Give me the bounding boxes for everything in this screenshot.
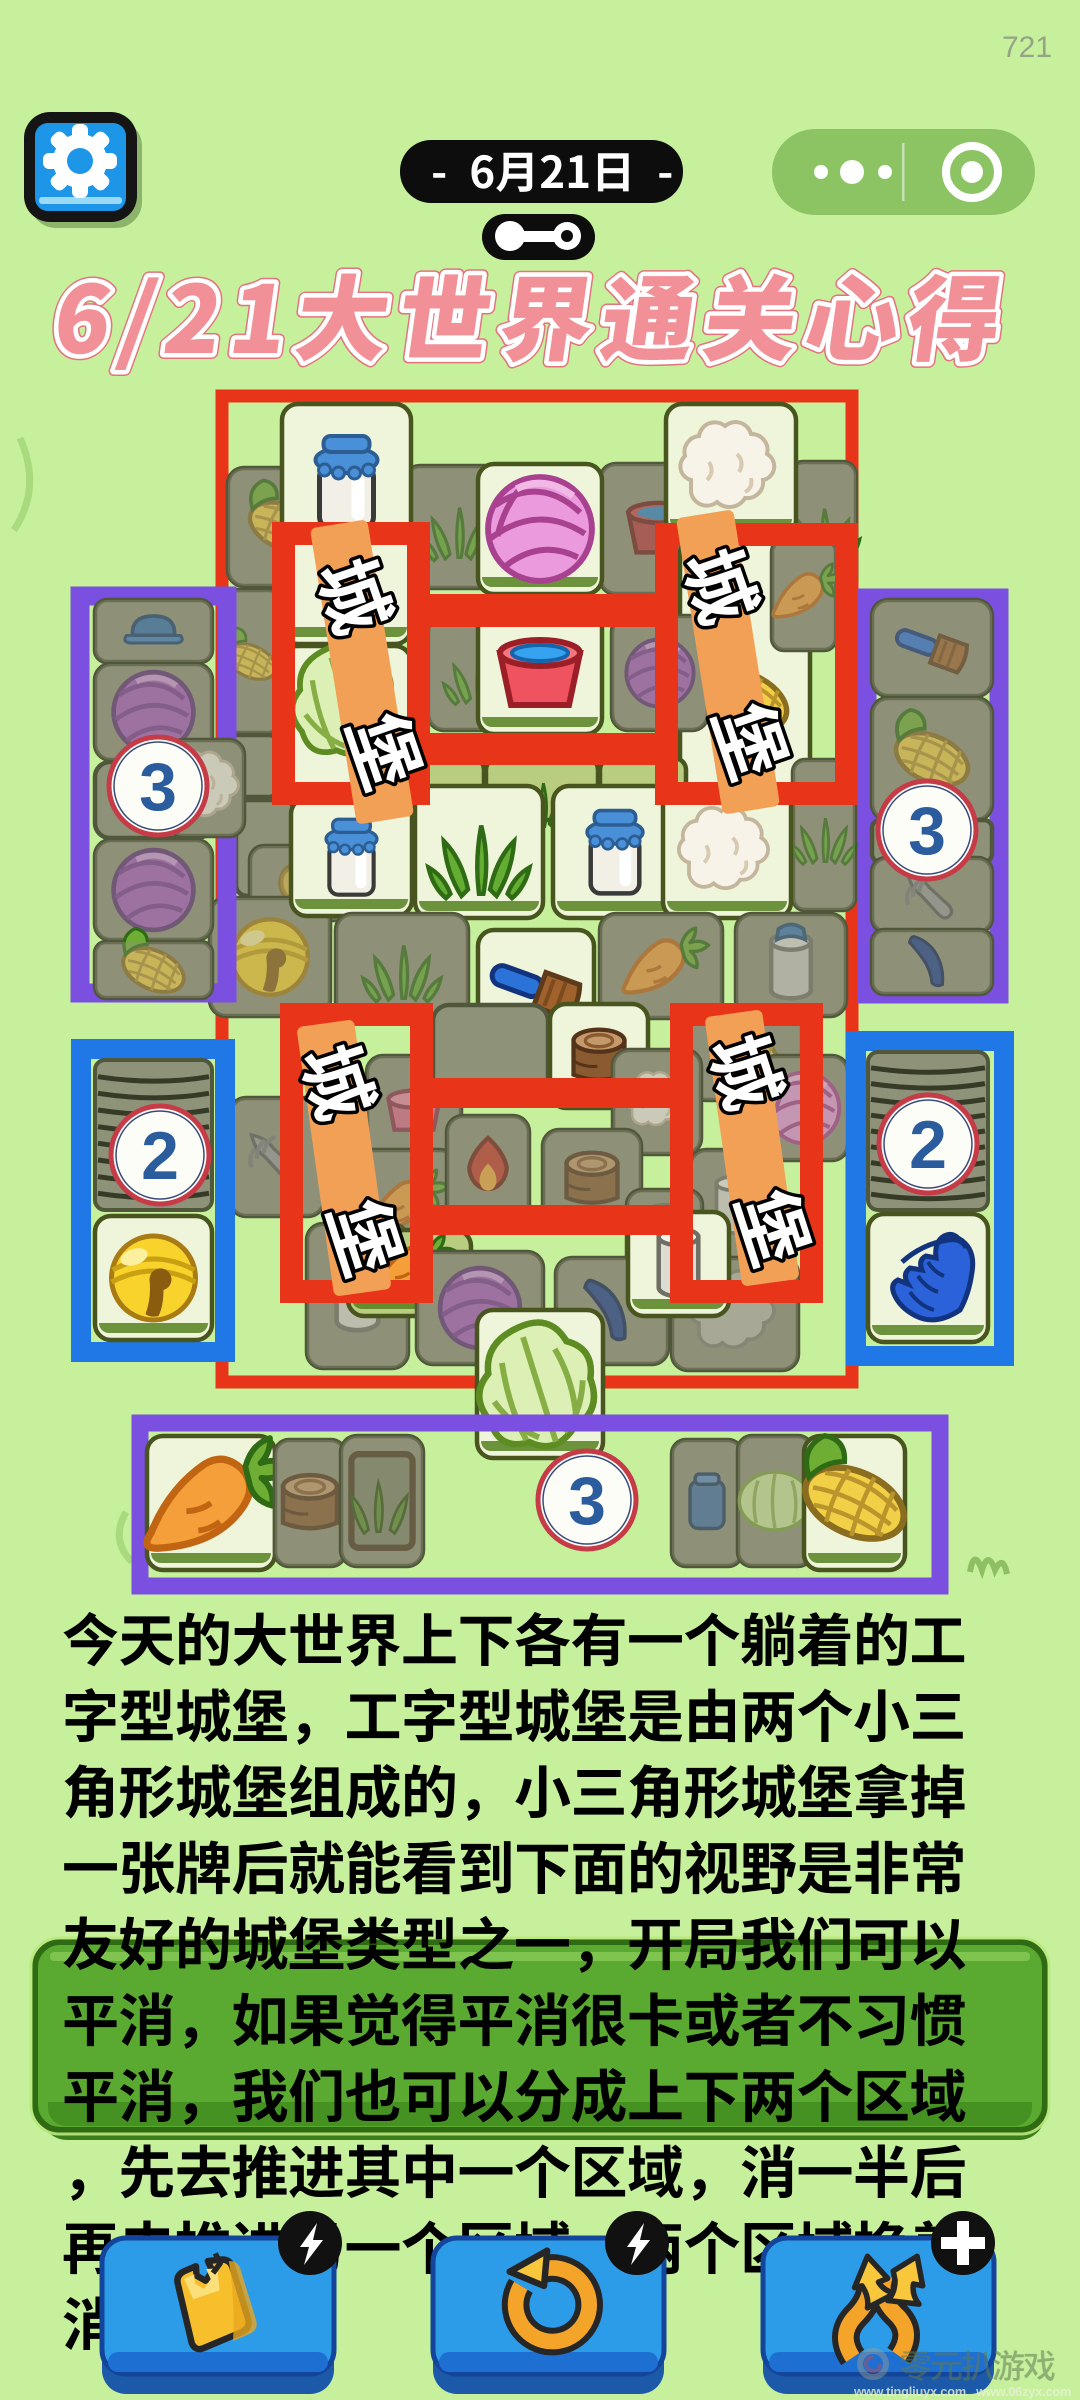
svg-text:3: 3 xyxy=(568,1463,606,1539)
svg-text:721: 721 xyxy=(1002,31,1052,64)
svg-text:2: 2 xyxy=(909,1107,947,1183)
svg-text:www.tingliuyx.com www.06zyx.: www.tingliuyx.com www.06zyx.com xyxy=(853,2384,1071,2399)
svg-text:3: 3 xyxy=(139,749,177,825)
svg-text:3: 3 xyxy=(908,793,946,869)
svg-text:2: 2 xyxy=(141,1118,179,1194)
